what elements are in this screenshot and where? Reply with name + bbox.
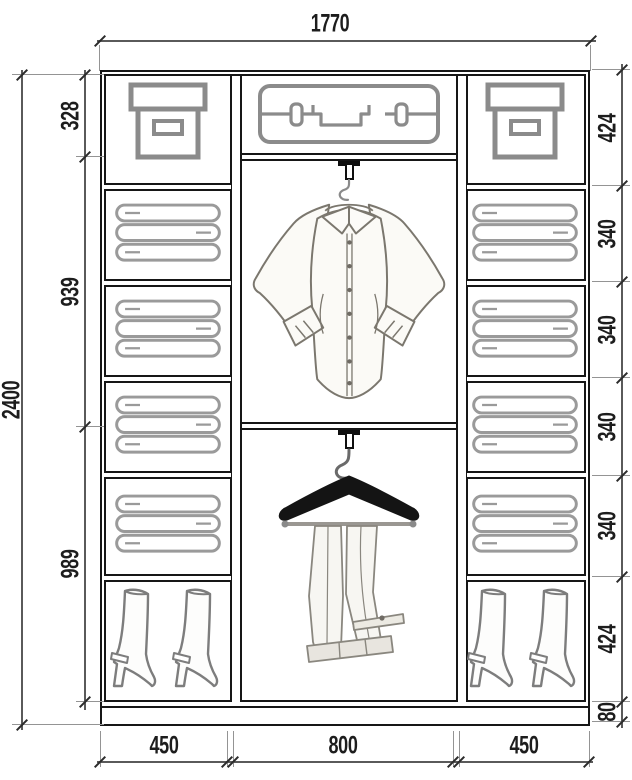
ext-line — [592, 377, 630, 378]
trousers-on-hanger-icon — [269, 446, 429, 698]
shelf — [242, 422, 456, 430]
ext-line — [76, 156, 104, 157]
shelf — [467, 279, 586, 287]
shelf — [467, 471, 586, 479]
wardrobe-dimension-drawing: 1770 2400 328 939 989 424 340 340 340 34… — [0, 0, 632, 780]
storage-box-icon — [118, 79, 218, 165]
shirt-on-hanger-icon — [239, 177, 459, 407]
shelf — [104, 183, 231, 191]
ext-line — [12, 724, 104, 725]
storage-box-icon — [475, 79, 575, 165]
dim-side-5: 424 — [594, 625, 623, 654]
folded-clothes-icon — [112, 201, 224, 267]
ext-line — [592, 475, 630, 476]
shelf — [467, 375, 586, 383]
dim-side-6: 80 — [594, 702, 623, 721]
boots-icon — [467, 586, 583, 694]
shelf — [242, 153, 456, 161]
dim-overall-height: 2400 — [0, 381, 27, 420]
dim-mid-0: 328 — [57, 102, 86, 131]
shelf — [104, 375, 231, 383]
dim-mid-1: 939 — [57, 278, 86, 307]
dim-mid-2: 989 — [57, 550, 86, 579]
shelf — [104, 574, 231, 582]
ext-line — [12, 74, 104, 75]
dim-line — [97, 40, 596, 42]
shelf — [104, 471, 231, 479]
dim-line — [84, 70, 86, 710]
ext-line — [99, 45, 100, 71]
shelf — [467, 574, 586, 582]
ext-line — [592, 185, 630, 186]
dim-side-4: 340 — [594, 512, 623, 541]
dim-side-1: 340 — [594, 220, 623, 249]
ext-line — [592, 281, 630, 282]
shelf — [467, 183, 586, 191]
dim-bottom-2: 450 — [510, 732, 539, 761]
suitcase-icon — [257, 83, 441, 145]
dim-side-3: 340 — [594, 413, 623, 442]
boots-icon — [110, 586, 226, 694]
folded-clothes-icon — [469, 297, 581, 363]
shelf — [104, 279, 231, 287]
ext-line — [590, 45, 591, 71]
ext-line — [76, 701, 104, 702]
dim-overall-width: 1770 — [311, 10, 350, 39]
dim-bottom-0: 450 — [150, 732, 179, 761]
folded-clothes-icon — [469, 492, 581, 558]
dim-side-0: 424 — [594, 114, 623, 143]
ext-line — [76, 426, 104, 427]
folded-clothes-icon — [112, 492, 224, 558]
dim-line — [97, 761, 593, 763]
folded-clothes-icon — [469, 201, 581, 267]
folded-clothes-icon — [112, 297, 224, 363]
dim-side-2: 340 — [594, 316, 623, 345]
plinth-base — [102, 706, 588, 708]
folded-clothes-icon — [112, 393, 224, 459]
ext-line — [592, 69, 630, 70]
folded-clothes-icon — [469, 393, 581, 459]
ext-line — [592, 576, 630, 577]
dim-bottom-1: 800 — [329, 732, 358, 761]
wardrobe-cabinet — [100, 70, 590, 726]
